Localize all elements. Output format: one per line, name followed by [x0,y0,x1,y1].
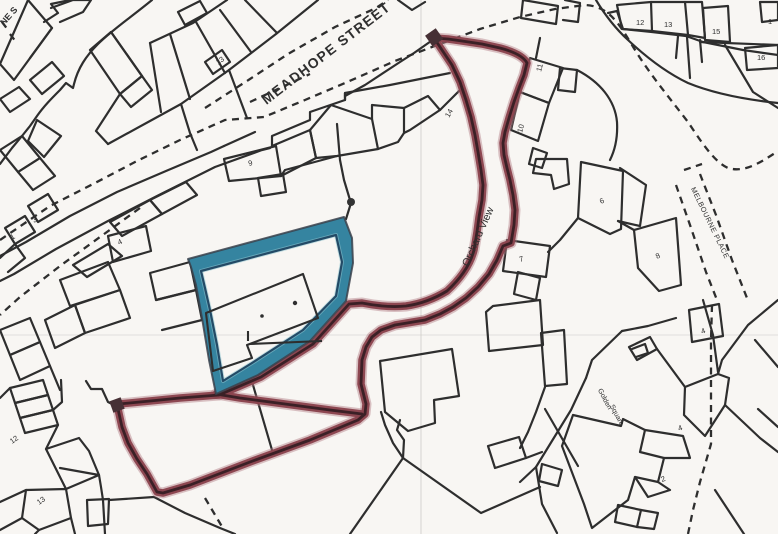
svg-text:12: 12 [636,18,644,27]
svg-text:16: 16 [757,53,765,62]
svg-text:15: 15 [712,27,720,36]
svg-text:1: 1 [768,17,772,26]
svg-text:13: 13 [664,20,672,29]
